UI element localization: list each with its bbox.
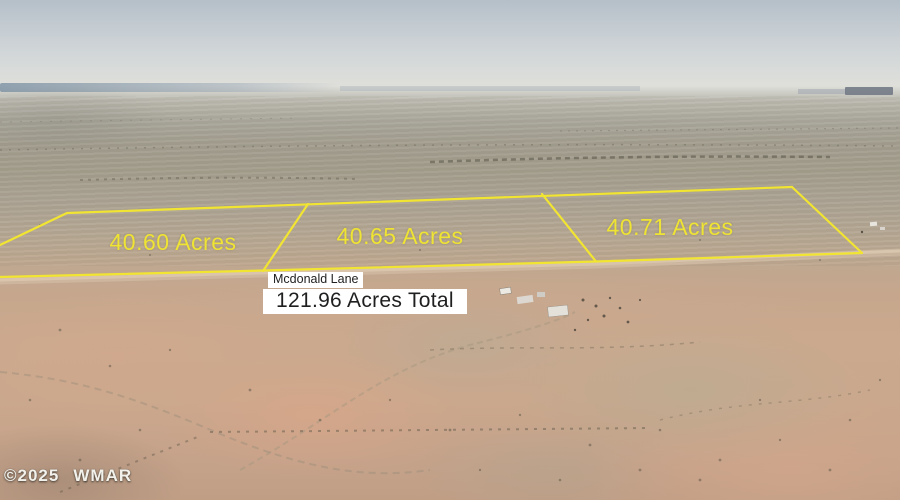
total-acreage-label: 121.96 Acres Total — [263, 289, 467, 314]
top-line — [67, 187, 792, 213]
road-name-label: Mcdonald Lane — [268, 272, 363, 288]
divider-1-2 — [263, 204, 308, 271]
parcel-1-acreage-label: 40.60 Acres — [103, 229, 243, 256]
road-line — [0, 253, 862, 277]
distant-mountains-left — [0, 83, 340, 92]
parcel-3-acreage-label: 40.71 Acres — [600, 214, 740, 241]
copyright-watermark: ©2025WMAR — [4, 466, 132, 486]
distant-mesa-right — [845, 87, 893, 95]
distant-mesa-right-haze — [798, 89, 846, 94]
right-edge — [792, 187, 862, 253]
aerial-photo: 40.60 Acres 40.65 Acres 40.71 Acres Mcdo… — [0, 0, 900, 500]
left-edge — [0, 213, 67, 245]
watermark-brand: WMAR — [73, 466, 132, 485]
vegetation-bands — [0, 118, 900, 180]
scattered-shrubs — [29, 224, 882, 481]
yard-debris — [574, 297, 641, 331]
distant-mountains-middle — [340, 86, 640, 91]
far-right-structures — [861, 222, 885, 234]
arroyo-washes — [0, 312, 870, 492]
divider-2-3 — [542, 194, 596, 262]
parcel-2-acreage-label: 40.65 Acres — [330, 223, 470, 250]
watermark-year: ©2025 — [4, 466, 59, 485]
homestead-buildings — [500, 287, 641, 331]
